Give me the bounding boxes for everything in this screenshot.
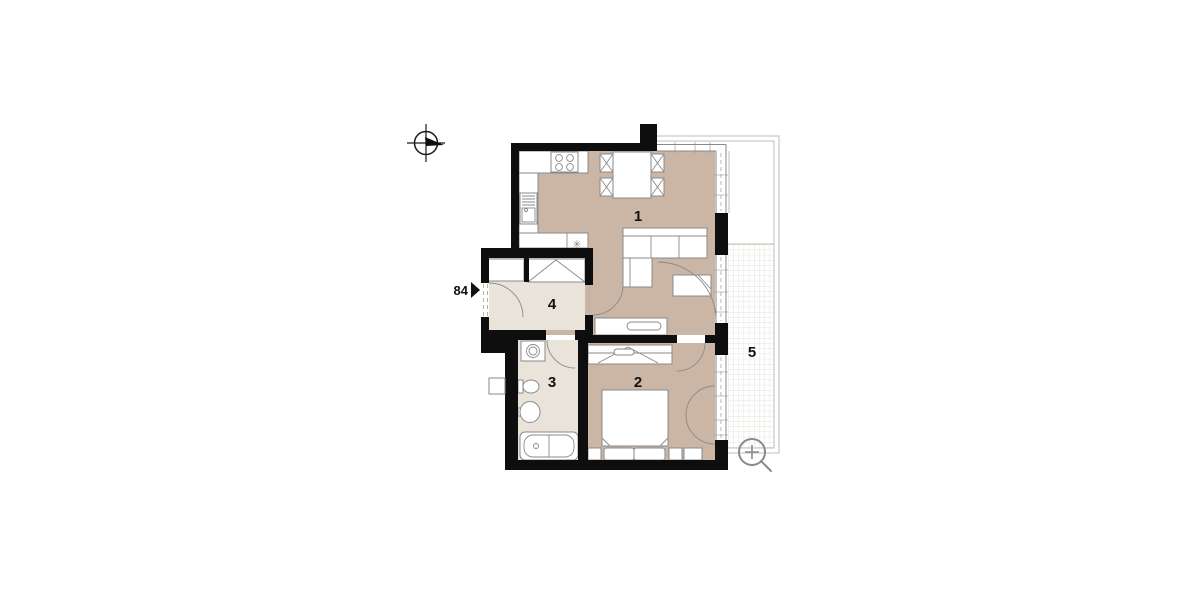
side-table	[673, 275, 711, 296]
pillow	[604, 448, 634, 460]
dining-table	[613, 152, 651, 198]
sofa-chaise	[623, 258, 652, 287]
wash-basin	[520, 402, 540, 423]
hall-furniture	[488, 259, 585, 282]
entry-opening-dashes	[484, 284, 488, 316]
floor-plan-drawing: ✳	[0, 0, 1200, 600]
stove	[551, 152, 578, 172]
bench	[684, 448, 702, 460]
room-3-label: 3	[548, 374, 556, 391]
room-4-label: 4	[548, 296, 557, 313]
nightstand	[669, 448, 682, 460]
sofa	[623, 228, 707, 258]
entry-arrow-icon	[471, 282, 480, 298]
room-5-label: 5	[748, 344, 756, 361]
wardrobe-item	[614, 349, 634, 355]
unit-number-label: 84	[454, 283, 469, 298]
room-1-label: 1	[634, 208, 642, 225]
toilet-tank	[518, 380, 523, 393]
kitchen-sink	[520, 193, 537, 224]
toilet-bowl	[523, 380, 539, 393]
hall-wardrobe	[528, 259, 585, 282]
entry-marker: 84	[454, 282, 480, 298]
hall-niche	[488, 259, 524, 281]
nightstand	[588, 448, 601, 460]
compass-rose-icon	[407, 124, 445, 162]
pillow	[634, 448, 665, 460]
sideboard-item	[627, 322, 661, 330]
service-shaft	[489, 378, 505, 394]
bed	[602, 390, 668, 446]
washing-machine	[521, 341, 545, 361]
room-2-label: 2	[634, 374, 642, 391]
floor-plan-page: ✳	[0, 0, 1200, 600]
